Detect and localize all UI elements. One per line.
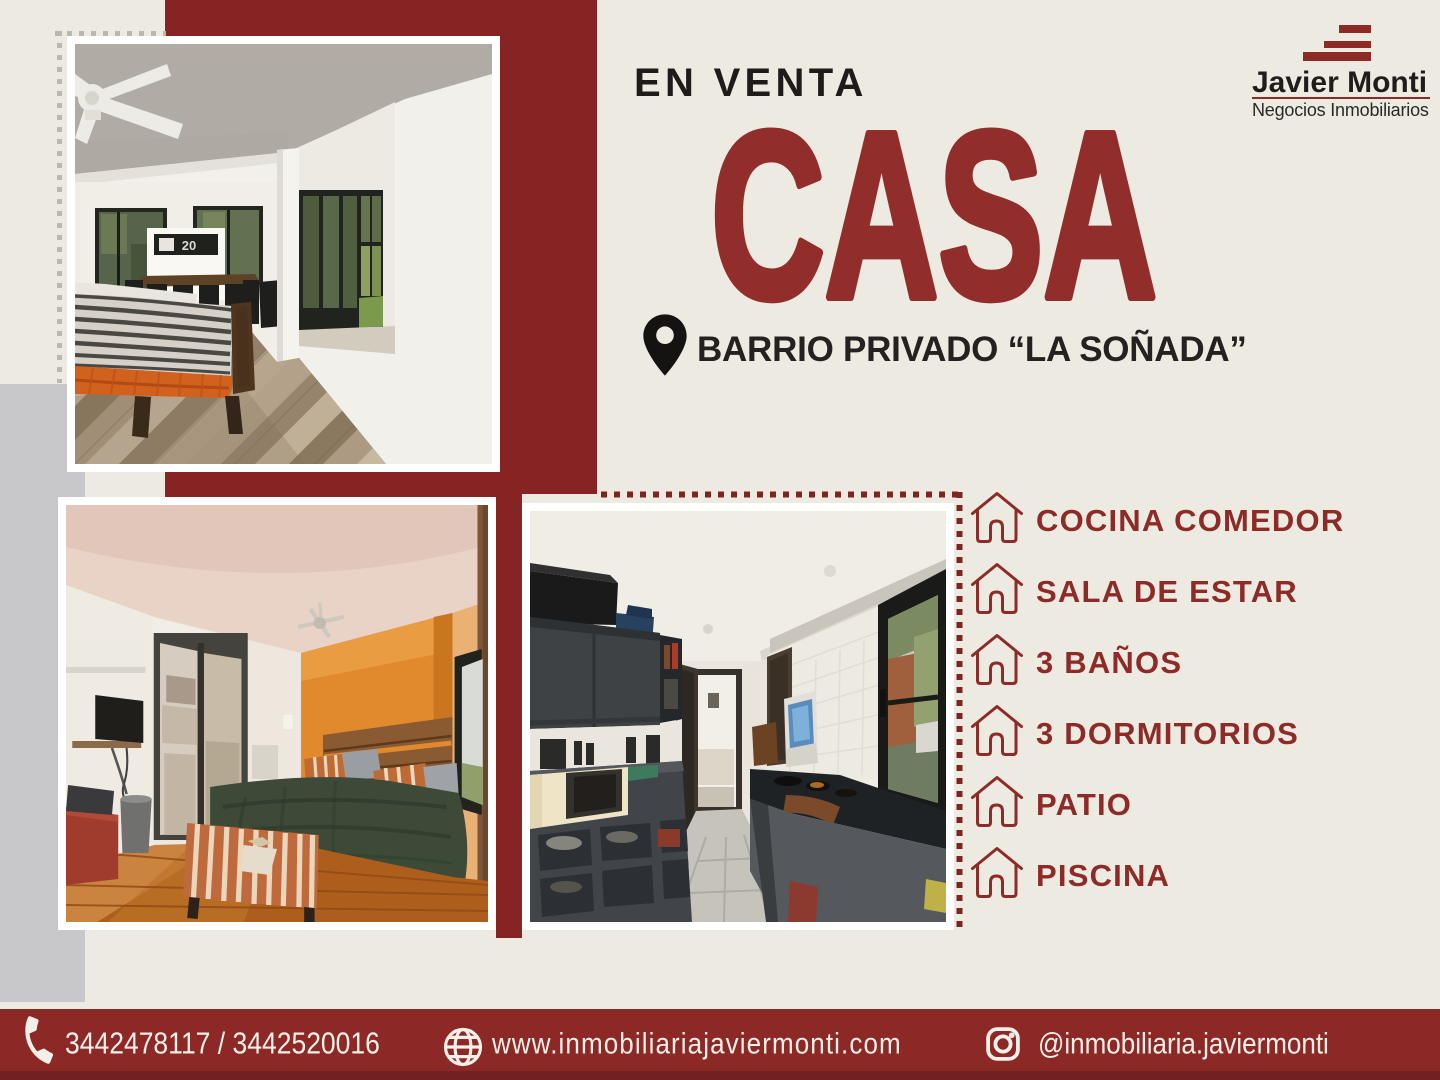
svg-text:CASA: CASA bbox=[711, 126, 1157, 310]
svg-text:20: 20 bbox=[182, 238, 196, 253]
